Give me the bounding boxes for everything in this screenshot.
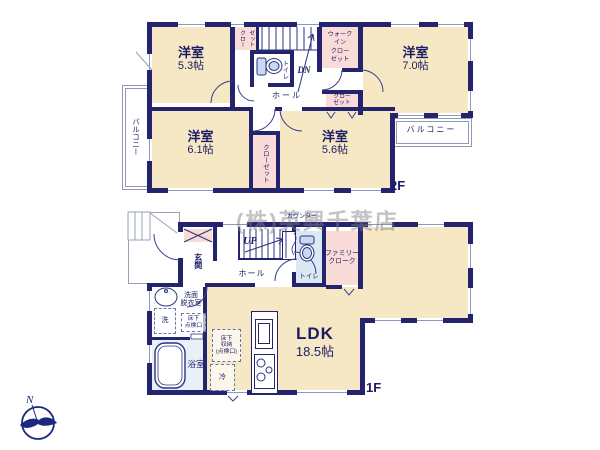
wall — [358, 90, 363, 115]
label-bedroom-7-0: 洋室 7.0帖 — [363, 38, 468, 80]
label-wic: ウォーク イン クロー ゼット — [322, 29, 358, 66]
compass-north-label: N — [25, 394, 34, 406]
window — [350, 188, 382, 193]
window — [147, 290, 152, 312]
label-balcony-right: バルコニー — [393, 123, 470, 137]
window — [303, 188, 335, 193]
window — [437, 113, 462, 118]
window — [416, 318, 444, 323]
underfloor-hatch: 床下 点検口 — [181, 313, 206, 332]
label-counter: カウンター — [284, 214, 320, 222]
wall — [275, 107, 282, 111]
label-hall-2f: ホール — [252, 90, 322, 102]
floor-label-1f: 1F — [366, 380, 381, 395]
window — [437, 22, 465, 27]
label-closet-bottom: クローゼット — [253, 140, 276, 186]
door-gap — [178, 232, 183, 258]
window — [177, 22, 206, 27]
window — [468, 38, 473, 62]
label-closet-mid: クロー ゼット — [326, 93, 358, 107]
label-closet-top: クロー ゼット — [235, 27, 256, 50]
window — [296, 390, 348, 395]
room-ldk-wing — [363, 227, 468, 318]
wall — [147, 283, 183, 287]
label-bedroom-6-1: 洋室 6.1帖 — [152, 122, 249, 164]
floor-label-2f: 2F — [390, 178, 405, 193]
window — [374, 318, 402, 323]
door-gap — [254, 83, 268, 87]
window — [468, 287, 473, 315]
wall — [317, 68, 322, 72]
wall — [302, 107, 395, 111]
label-balcony-left: バルコニー — [122, 95, 150, 179]
label-toilet-2f: トイレ — [279, 55, 289, 85]
wall — [249, 111, 253, 133]
label-stairs-up: UP — [240, 236, 260, 248]
window — [397, 113, 425, 118]
wall — [250, 50, 294, 54]
wall — [250, 50, 254, 87]
window — [390, 22, 420, 27]
fridge-space: 冷 — [210, 364, 235, 391]
wall — [147, 107, 253, 111]
label-hall-1f: ホール — [232, 268, 272, 279]
label-bedroom-5-3: 洋室 5.3帖 — [152, 38, 230, 80]
wall — [147, 337, 190, 340]
label-toilet-1f: トイレ — [296, 272, 322, 281]
label-bedroom-5-6: 洋室 5.6帖 — [280, 122, 390, 164]
label-entrance: 玄関 — [192, 248, 204, 274]
window — [296, 22, 320, 27]
washer-space: 洗 — [154, 308, 176, 334]
wall — [292, 283, 326, 287]
label-ldk: LDK 18.5帖 — [268, 320, 362, 364]
underfloor-storage: 床下 収納 (点検口) — [212, 329, 241, 362]
label-stairs-dn: DN — [293, 64, 315, 76]
entrance-porch — [128, 212, 180, 284]
window — [167, 188, 214, 193]
window — [147, 344, 152, 364]
floor-plan: 洋室 5.3帖 洋室 7.0帖 洋室 6.1帖 洋室 5.6帖 ホール トイレ … — [0, 0, 600, 450]
label-washroom: 洗面 脱衣室 — [176, 291, 206, 309]
label-family-cloak: ファミリー クローク — [324, 248, 360, 268]
window — [468, 243, 473, 269]
wall — [256, 22, 259, 53]
wall — [326, 285, 342, 289]
label-bathroom: 浴室 — [184, 359, 208, 370]
wall — [205, 283, 255, 287]
wall — [213, 227, 217, 261]
window — [417, 222, 445, 227]
compass-icon: N — [12, 390, 68, 448]
shoe-cabinet — [184, 229, 212, 242]
window — [468, 90, 473, 112]
